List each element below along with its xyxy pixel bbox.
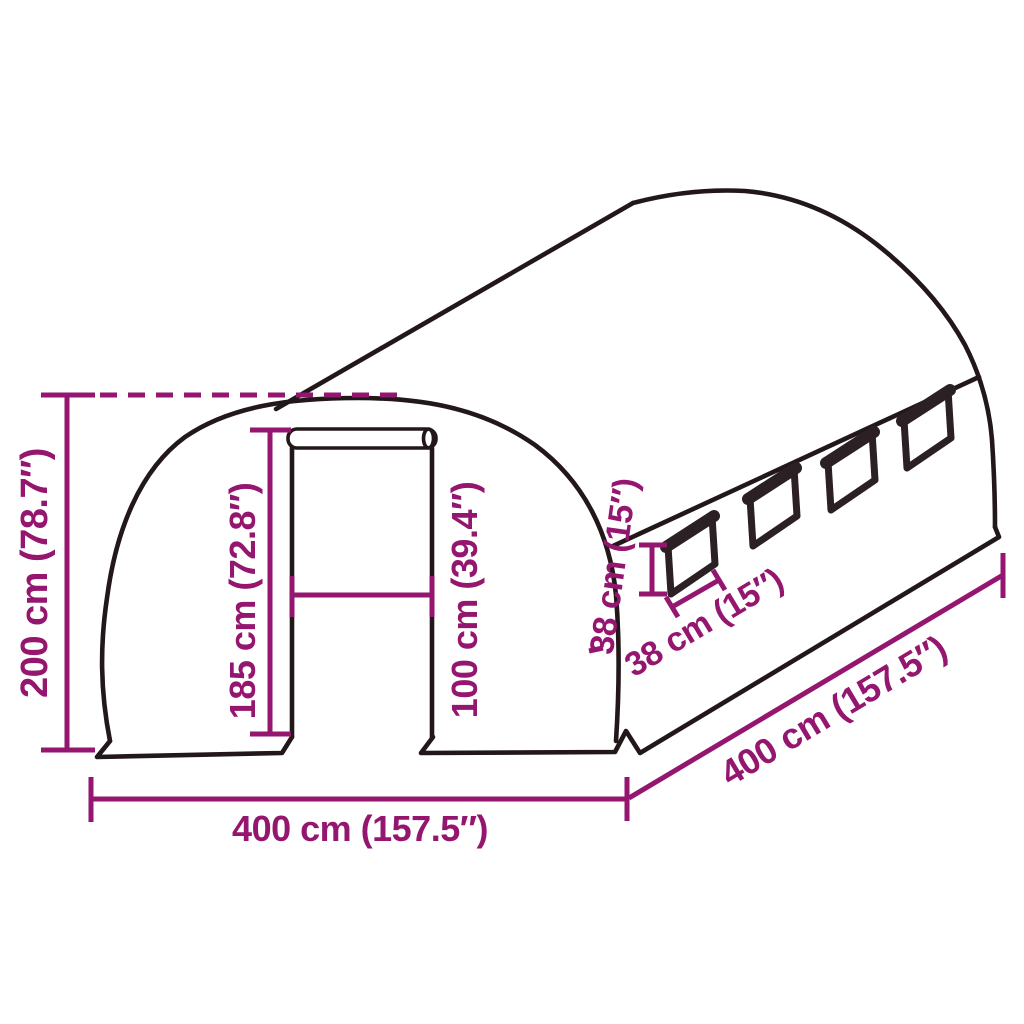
window-height-label: 38 cm (15″) (583, 476, 645, 657)
door-height-dimension: 185 cm (72.8″) (222, 430, 291, 734)
front-width-label: 400 cm (157.5″) (232, 808, 488, 849)
window-width-dimension: 38 cm (15″) (618, 561, 789, 685)
door-roller-bar (288, 429, 436, 448)
window-width-label: 38 cm (15″) (618, 561, 789, 685)
door-height-label: 185 cm (72.8″) (222, 483, 263, 719)
total-height-label: 200 cm (78.7″) (14, 448, 56, 698)
front-width-dimension: 400 cm (157.5″) (91, 777, 629, 849)
door-roller-end-cap (424, 429, 434, 448)
side-length-dimension-line (629, 553, 1003, 798)
ridge-line (276, 203, 633, 409)
front-bottom-edge-left (97, 737, 292, 757)
window-1 (666, 516, 715, 594)
window-4 (902, 390, 951, 468)
total-height-dimension: 200 cm (78.7″) (14, 395, 95, 750)
window-height-dimension-line (639, 545, 667, 594)
door-width-dimension: 100 cm (39.4″) (292, 482, 485, 718)
diagram-canvas: 200 cm (78.7″) 185 cm (72.8″) 100 cm (39… (0, 0, 1024, 1024)
door-width-dimension-line (292, 576, 432, 617)
greenhouse-dimension-diagram: 200 cm (78.7″) 185 cm (72.8″) 100 cm (39… (0, 0, 1024, 1024)
door-opening (288, 429, 436, 737)
side-windows (666, 390, 951, 594)
door-width-label: 100 cm (39.4″) (444, 482, 485, 718)
side-length-dimension: 400 cm (157.5″) (629, 553, 1003, 798)
side-length-label: 400 cm (157.5″) (713, 627, 953, 794)
back-arch (633, 191, 995, 528)
